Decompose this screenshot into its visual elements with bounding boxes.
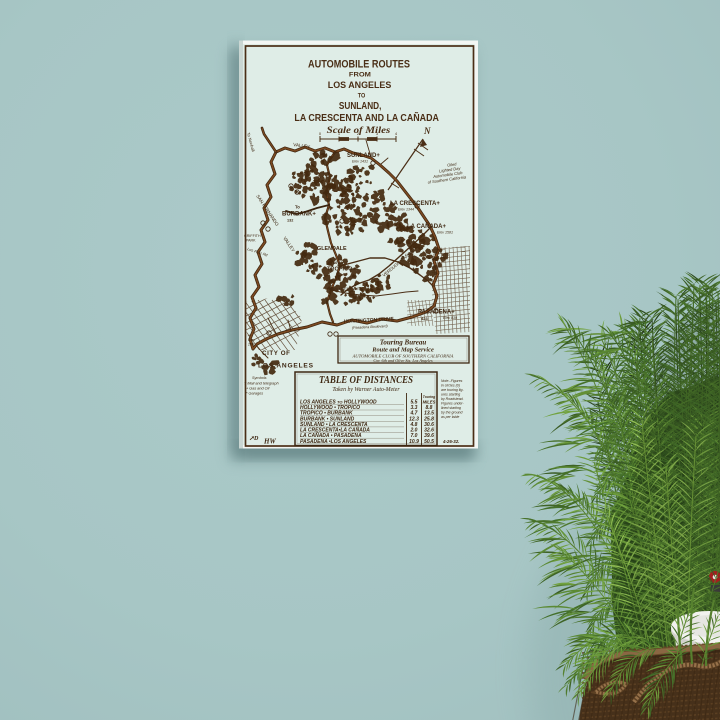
svg-text:T Mail and telegraph: T Mail and telegraph [244,382,279,386]
svg-text:TABLE OF DISTANCES: TABLE OF DISTANCES [319,375,413,386]
svg-text:Elev 1431: Elev 1431 [352,160,368,164]
svg-text:GLENDALE: GLENDALE [317,246,347,252]
svg-text:132: 132 [287,219,293,223]
svg-text:BURBANK+: BURBANK+ [282,212,316,218]
svg-text:Route and Map Service: Route and Map Service [371,347,434,354]
svg-text:are touring fig-: are touring fig- [441,388,464,392]
svg-text:LOS ANGELES: LOS ANGELES [258,363,314,370]
svg-text:86 60: 86 60 [333,261,343,265]
svg-text:N: N [423,126,431,136]
svg-text:PARK: PARK [246,239,256,243]
svg-text:in circles (0): in circles (0) [441,384,460,388]
svg-text:SUNLAND+: SUNLAND+ [347,153,380,159]
svg-text:as per table: as per table [441,415,459,419]
svg-text:Elev 1581: Elev 1581 [437,231,453,235]
svg-text:Taken by Warner Auto-Meter: Taken by Warner Auto-Meter [332,387,400,393]
svg-text:Figures under-: Figures under- [441,402,465,406]
svg-text:LA CAÑADA+: LA CAÑADA+ [407,223,446,230]
svg-text:LOS ANGELES: LOS ANGELES [328,79,392,90]
svg-text:by Roadstead.: by Roadstead. [441,397,464,401]
svg-text:TO: TO [358,92,366,99]
svg-text:Cor. 6th and Olive Sts. Los An: Cor. 6th and Olive Sts. Los Angeles [373,358,433,363]
svg-text:PASADENA •LOS ANGELES: PASADENA •LOS ANGELES [300,439,367,445]
svg-text:Elev 830: Elev 830 [443,316,457,320]
svg-text:ures starting: ures starting [441,393,460,397]
svg-text:* Garages: * Garages [246,392,263,396]
svg-text:➚D: ➚D [249,436,259,442]
svg-text:10.9: 10.9 [409,439,419,445]
svg-text:MILES: MILES [423,399,436,404]
svg-text:TROPICO+: TROPICO+ [327,267,356,273]
svg-text:CITY OF: CITY OF [262,350,291,357]
svg-text:lined starting: lined starting [441,406,461,410]
svg-text:+ Gas and Oil: + Gas and Oil [246,387,269,391]
svg-text:Elev: Elev [248,338,255,342]
svg-text:PASADENA+: PASADENA+ [418,310,455,316]
svg-text:FROM: FROM [349,72,371,79]
svg-text:Elev 1344: Elev 1344 [398,208,414,212]
svg-text:423: 423 [421,316,428,321]
svg-text:4-26-32.: 4-26-32. [442,439,459,444]
svg-text:AUTOMOBILE ROUTES: AUTOMOBILE ROUTES [308,59,410,71]
svg-text:50.5: 50.5 [424,439,434,445]
svg-text:Symbols: Symbols [252,376,267,380]
svg-text:LA CRESCENTA AND LA CAÑADA: LA CRESCENTA AND LA CAÑADA [294,113,439,124]
svg-text:Note--Figures: Note--Figures [441,379,463,383]
svg-text:Touring Bureau: Touring Bureau [380,339,427,347]
svg-text:by the ground: by the ground [441,411,463,415]
svg-text:To: To [295,205,300,210]
svg-text:250: 250 [247,343,254,347]
svg-text:GRIFFITH: GRIFFITH [244,234,261,238]
svg-text:HW: HW [263,438,276,446]
svg-text:SUNLAND,: SUNLAND, [339,101,382,112]
